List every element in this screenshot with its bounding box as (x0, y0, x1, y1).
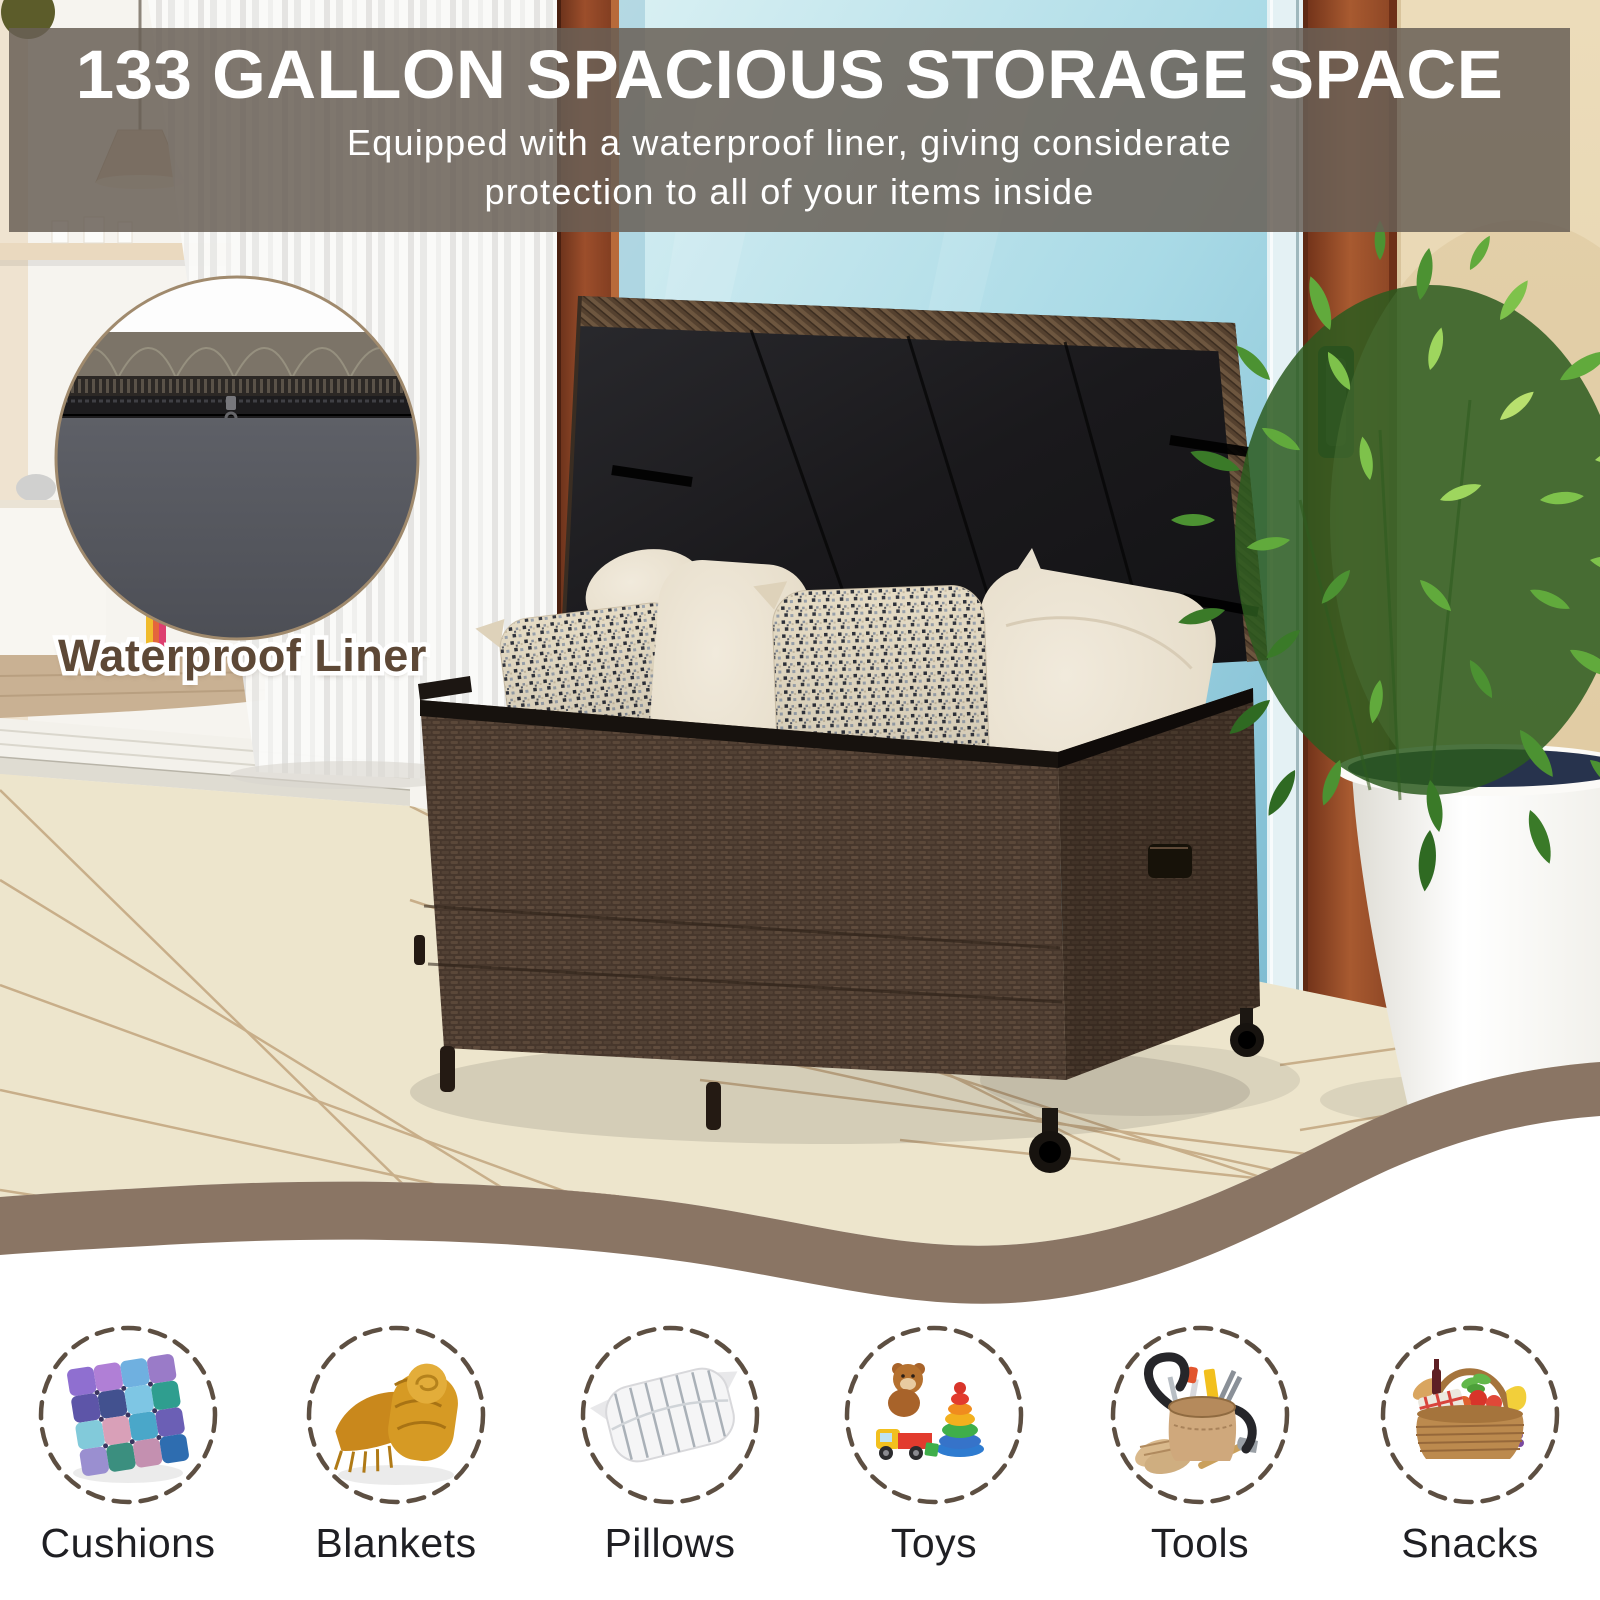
feature-snacks (1383, 1328, 1557, 1502)
header-banner: 133 GALLON SPACIOUS STORAGE SPACE Equipp… (9, 28, 1570, 232)
dashed-circle (847, 1328, 1021, 1502)
kettle (16, 474, 56, 502)
feature-label-cushions: Cushions (18, 1520, 238, 1567)
feature-label-tools: Tools (1090, 1520, 1310, 1567)
headline: 133 GALLON SPACIOUS STORAGE SPACE (76, 38, 1503, 113)
scene-illustration (0, 0, 1600, 1600)
feature-label-snacks: Snacks (1360, 1520, 1580, 1567)
feature-toys (847, 1328, 1021, 1502)
feature-blankets (309, 1328, 483, 1502)
box-leg (440, 1046, 455, 1092)
feature-circles (41, 1328, 1557, 1502)
product-infographic: 133 GALLON SPACIOUS STORAGE SPACE Equipp… (0, 0, 1600, 1600)
subheadline-line2: protection to all of your items inside (485, 167, 1095, 216)
box-leg (706, 1082, 721, 1130)
inset-caption: Waterproof Liner Waterproof Liner (58, 630, 418, 694)
feature-label-blankets: Blankets (286, 1520, 506, 1567)
feature-label-pillows: Pillows (560, 1520, 780, 1567)
subheadline-line1: Equipped with a waterproof liner, giving… (347, 118, 1232, 167)
feature-label-toys: Toys (824, 1520, 1044, 1567)
box-side-handle (1148, 844, 1192, 878)
box-leg (414, 935, 425, 965)
zipper-pull (226, 396, 236, 410)
feature-cushions (41, 1328, 215, 1502)
feature-tools (1113, 1328, 1287, 1502)
inset-caption-text: Waterproof Liner (58, 630, 418, 682)
feature-pillows (583, 1328, 757, 1502)
